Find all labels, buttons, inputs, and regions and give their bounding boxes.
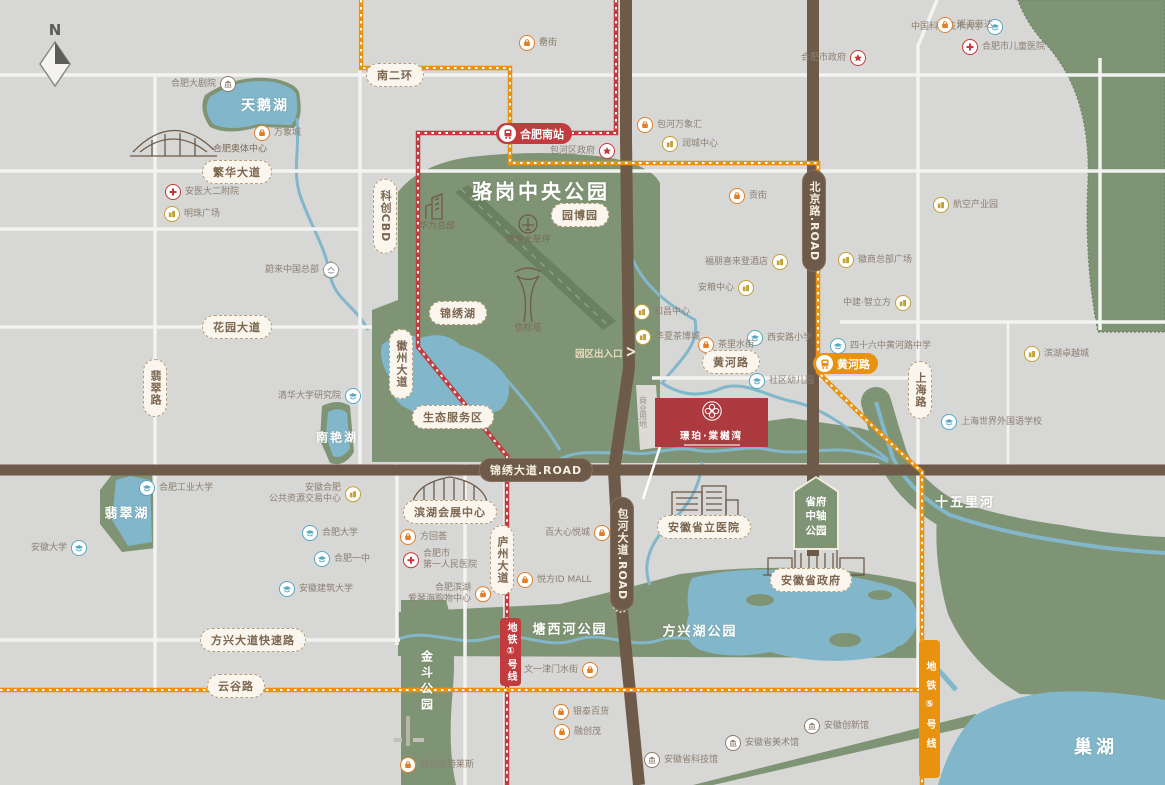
road-label-pill: 南二环 <box>366 63 424 87</box>
poi-label: 和昌中心 <box>654 307 690 318</box>
shop-icon <box>554 724 570 740</box>
shop-icon <box>254 125 270 141</box>
poi-label: 合肥大剧院 <box>171 79 216 90</box>
school-icon <box>71 540 87 556</box>
poi-marker: 万象城 <box>254 125 301 141</box>
poi-label: 首创奥特莱斯 <box>420 760 474 771</box>
road-label-pill: 繁华大道 <box>202 160 272 184</box>
road-label-pill: 园博园 <box>551 203 609 227</box>
poi-marker: 安徽大学 <box>31 540 87 556</box>
poi-marker: 安医大二附院 <box>165 184 239 200</box>
poi-marker: 百大心悦城 <box>545 525 610 541</box>
poi-label: 合肥一中 <box>334 554 370 565</box>
poi-marker: 上海世界外国语学校 <box>941 414 1042 430</box>
gov-icon <box>599 143 615 159</box>
poi-label: 安徽省科技馆 <box>664 755 718 766</box>
poi-label: 合肥工业大学 <box>159 483 213 494</box>
poi-label: 社区幼儿园 <box>769 376 814 387</box>
poi-label: 安医大二附院 <box>185 187 239 198</box>
poi-label: 华夏茶博城 <box>655 332 700 343</box>
station-name: 合肥南站 <box>520 126 564 142</box>
shield-line: 中轴 <box>806 510 827 523</box>
map-markers-layer: N 合肥南站 黄河路 地铁①号线 地铁⑤号线 省府 中轴 公园 <box>0 0 1165 785</box>
poi-marker: 安徽省科技馆 <box>644 752 718 768</box>
poi-marker: 合肥一中 <box>314 551 370 567</box>
poi-marker: 悦方ID MALL <box>517 572 591 588</box>
area-label: 金斗公园 <box>419 650 436 714</box>
poi-label: 滨湖卓越城 <box>1044 349 1089 360</box>
poi-label: 清华大学研究院 <box>278 391 341 402</box>
poi-marker: 明珠广场 <box>164 206 220 222</box>
poi-marker: 安徽创新馆 <box>804 718 869 734</box>
poi-marker: 安徽合肥公共资源交易中心 <box>269 483 361 505</box>
school-icon <box>345 388 361 404</box>
biz-icon <box>933 197 949 213</box>
mus-icon <box>804 718 820 734</box>
biz-icon <box>838 252 854 268</box>
biz-icon <box>1024 346 1040 362</box>
project-name: 璟珀·棠樾湾 <box>680 428 743 442</box>
area-label: 天鹅湖 <box>241 95 289 115</box>
poi-label: 合肥市儿童医院 <box>982 42 1045 53</box>
poi-label: 银泰百货 <box>573 707 609 718</box>
train-icon <box>499 125 516 142</box>
poi-label: 航空产业园 <box>953 200 998 211</box>
road-label-pill: 上海路 <box>908 361 932 419</box>
poi-label: 安徽建筑大学 <box>299 584 353 595</box>
gov-icon <box>850 50 866 66</box>
shop-icon <box>729 188 745 204</box>
hosp-icon <box>962 39 978 55</box>
poi-marker: 罍街 <box>519 35 557 51</box>
landmark-caption: 商业用地 <box>638 396 649 428</box>
poi-label: 瑶海万达 <box>957 20 993 31</box>
road-label-pill: 安徽省立医院 <box>657 515 751 539</box>
poi-label: 罍街 <box>539 38 557 49</box>
shop-icon <box>937 17 953 33</box>
scale-bar-label-right <box>413 738 424 742</box>
road-label-pill: 方兴大道快速路 <box>200 628 306 652</box>
landmark-caption: 合肥奥体中心 <box>213 142 267 155</box>
poi-label: 万象城 <box>274 128 301 139</box>
road-label-pill: 北京路.ROAD <box>802 170 826 272</box>
road-label-pill: 云谷路 <box>207 674 265 698</box>
project-logo-block: 璟珀·棠樾湾 <box>655 398 768 447</box>
poi-marker: 滨湖卓越城 <box>1024 346 1089 362</box>
poi-label: 西安路小学 <box>767 333 812 344</box>
road-label-pill: 生态服务区 <box>412 405 494 429</box>
poi-marker: 包河区政府 <box>550 143 615 159</box>
poi-marker: 合肥工业大学 <box>139 480 213 496</box>
biz-icon <box>635 329 651 345</box>
poi-label: 福朋喜来登酒店 <box>705 257 768 268</box>
poi-marker: 社区幼儿园 <box>749 373 814 389</box>
province-axis-park-shield: 省府 中轴 公园 <box>793 476 839 550</box>
poi-marker: 合肥市政府 <box>801 50 866 66</box>
biz-icon <box>345 486 361 502</box>
road-label-pill: 花园大道 <box>202 315 272 339</box>
school-icon <box>302 525 318 541</box>
poi-marker: 融创茂 <box>554 724 601 740</box>
poi-label: 中建·智立方 <box>843 298 891 309</box>
poi-label: 融创茂 <box>574 727 601 738</box>
shop-icon <box>400 529 416 545</box>
school-icon <box>279 581 295 597</box>
poi-marker: 合肥市儿童医院 <box>962 39 1045 55</box>
chevron-right-icon: > <box>626 343 637 363</box>
poi-label: 徽商总部广场 <box>858 255 912 266</box>
poi-marker: 西安路小学 <box>747 330 812 346</box>
poi-label: 方回荟 <box>420 532 447 543</box>
poi-label: 茶里水街 <box>718 340 754 351</box>
poi-marker: 安粮中心 <box>698 280 754 296</box>
road-label-pill: 安徽省政府 <box>770 568 852 592</box>
road-label-pill: 徽州大道 <box>389 329 413 399</box>
area-label: 南艳湖 <box>316 429 358 446</box>
poi-marker: 蔚来中国总部 <box>265 262 339 278</box>
huanghe-road-station-badge: 黄河路 <box>813 353 878 374</box>
poi-marker: 安徽省美术馆 <box>725 735 799 751</box>
poi-marker: 四十六中黄河路中学 <box>830 338 931 354</box>
poi-label: 安徽创新馆 <box>824 721 869 732</box>
area-label: 翡翠湖 <box>104 503 149 522</box>
shop-icon <box>637 117 653 133</box>
compass-north-label: N <box>49 21 62 39</box>
metro-line1-tag: 地铁①号线 <box>500 618 521 686</box>
poi-label: 润城中心 <box>682 139 718 150</box>
shop-icon <box>400 757 416 773</box>
poi-marker: 华夏茶博城 <box>635 329 700 345</box>
school-icon <box>941 414 957 430</box>
poi-label: 安徽大学 <box>31 543 67 554</box>
landmark-caption: 梦想大草坪 <box>505 233 550 246</box>
biz-icon <box>895 295 911 311</box>
shop-icon <box>519 35 535 51</box>
shop-icon <box>475 586 491 602</box>
poi-label: 文一津门水街 <box>524 665 578 676</box>
poi-label: 包河区政府 <box>550 146 595 157</box>
poi-marker: 中建·智立方 <box>843 295 911 311</box>
shop-icon <box>594 525 610 541</box>
school-icon <box>749 373 765 389</box>
biz-icon <box>772 254 788 270</box>
hefei-south-station-badge: 合肥南站 <box>496 123 572 144</box>
poi-label: 上海世界外国语学校 <box>961 417 1042 428</box>
school-icon <box>139 480 155 496</box>
poi-marker: 润城中心 <box>662 136 718 152</box>
poi-marker: 文一津门水街 <box>524 662 598 678</box>
mus-icon <box>644 752 660 768</box>
road-label-pill: 锦绣湖 <box>429 301 487 325</box>
shop-icon <box>582 662 598 678</box>
road-label-pill: 滨湖会展中心 <box>403 500 497 524</box>
landmark-caption: 华为总部 <box>419 219 455 232</box>
poi-label: 合肥滨湖爱琴海购物中心 <box>408 583 471 605</box>
poi-marker: 合肥市第一人民医院 <box>403 549 477 571</box>
school-icon <box>314 551 330 567</box>
poi-marker: 航空产业园 <box>933 197 998 213</box>
road-label-pill: 科创CBD <box>373 179 397 254</box>
area-label: 方兴湖公园 <box>662 621 737 640</box>
poi-marker: 合肥滨湖爱琴海购物中心 <box>408 583 491 605</box>
poi-label: 明珠广场 <box>184 209 220 220</box>
nio-icon <box>323 262 339 278</box>
poi-marker: 福朋喜来登酒店 <box>705 254 788 270</box>
shield-line: 公园 <box>806 525 827 538</box>
road-label-pill: 翡翠路 <box>143 359 167 417</box>
poi-marker: 瑶海万达 <box>937 17 993 33</box>
mus-icon <box>725 735 741 751</box>
poi-label: 百大心悦城 <box>545 528 590 539</box>
location-map: N 合肥南站 黄河路 地铁①号线 地铁⑤号线 省府 中轴 公园 <box>0 0 1165 785</box>
scale-bar <box>406 716 410 746</box>
hosp-icon <box>403 552 419 568</box>
biz-icon <box>662 136 678 152</box>
poi-label: 安粮中心 <box>698 283 734 294</box>
project-emblem-icon <box>701 400 723 426</box>
poi-label: 蔚来中国总部 <box>265 265 319 276</box>
poi-marker: 安徽建筑大学 <box>279 581 353 597</box>
poi-marker: 清华大学研究院 <box>278 388 361 404</box>
road-label-pill: 锦绣大道.ROAD <box>479 458 593 482</box>
biz-icon <box>164 206 180 222</box>
poi-label: 安徽合肥公共资源交易中心 <box>269 483 341 505</box>
poi-marker: 方回荟 <box>400 529 447 545</box>
mus-icon <box>220 76 236 92</box>
hosp-icon <box>165 184 181 200</box>
station-name: 黄河路 <box>837 356 870 372</box>
poi-marker: 包河万象汇 <box>637 117 702 133</box>
poi-marker: 合肥大剧院 <box>171 76 236 92</box>
biz-icon <box>738 280 754 296</box>
metro-line5-tag: 地铁⑤号线 <box>919 640 940 778</box>
metro-icon <box>816 355 833 372</box>
poi-label: 安徽省美术馆 <box>745 738 799 749</box>
shop-icon <box>517 572 533 588</box>
poi-marker: 和昌中心 <box>634 304 690 320</box>
area-label: 塘西河公园 <box>532 619 607 638</box>
landmark-caption: 信标塔 <box>514 321 541 334</box>
poi-marker: 贡街 <box>729 188 767 204</box>
area-label: 骆岗中央公园 <box>472 176 610 205</box>
poi-marker: 首创奥特莱斯 <box>400 757 474 773</box>
area-label: 十五里河 <box>935 492 995 511</box>
poi-label: 包河万象汇 <box>657 120 702 131</box>
poi-label: 贡街 <box>749 191 767 202</box>
gate-text: 园区出入口 <box>575 346 623 360</box>
poi-marker: 合肥大学 <box>302 525 358 541</box>
poi-label: 合肥市政府 <box>801 53 846 64</box>
scale-bar-label-left <box>394 738 402 742</box>
road-label-pill: 黄河路 <box>702 350 760 374</box>
poi-marker: 银泰百货 <box>553 704 609 720</box>
shop-icon <box>553 704 569 720</box>
poi-label: 悦方ID MALL <box>537 575 591 586</box>
road-label-pill: 包河大道.ROAD <box>610 497 634 611</box>
shield-line: 省府 <box>806 496 827 509</box>
school-icon <box>830 338 846 354</box>
road-label-pill: 庐州大道 <box>490 525 514 595</box>
area-label: 巢湖 <box>1074 733 1118 759</box>
poi-label: 合肥市第一人民医院 <box>423 549 477 571</box>
park-gate-label: 园区出入口 > <box>575 345 636 360</box>
poi-marker: 徽商总部广场 <box>838 252 912 268</box>
biz-icon <box>634 304 650 320</box>
project-tagline-rule <box>684 444 740 446</box>
poi-label: 合肥大学 <box>322 528 358 539</box>
poi-label: 四十六中黄河路中学 <box>850 341 931 352</box>
